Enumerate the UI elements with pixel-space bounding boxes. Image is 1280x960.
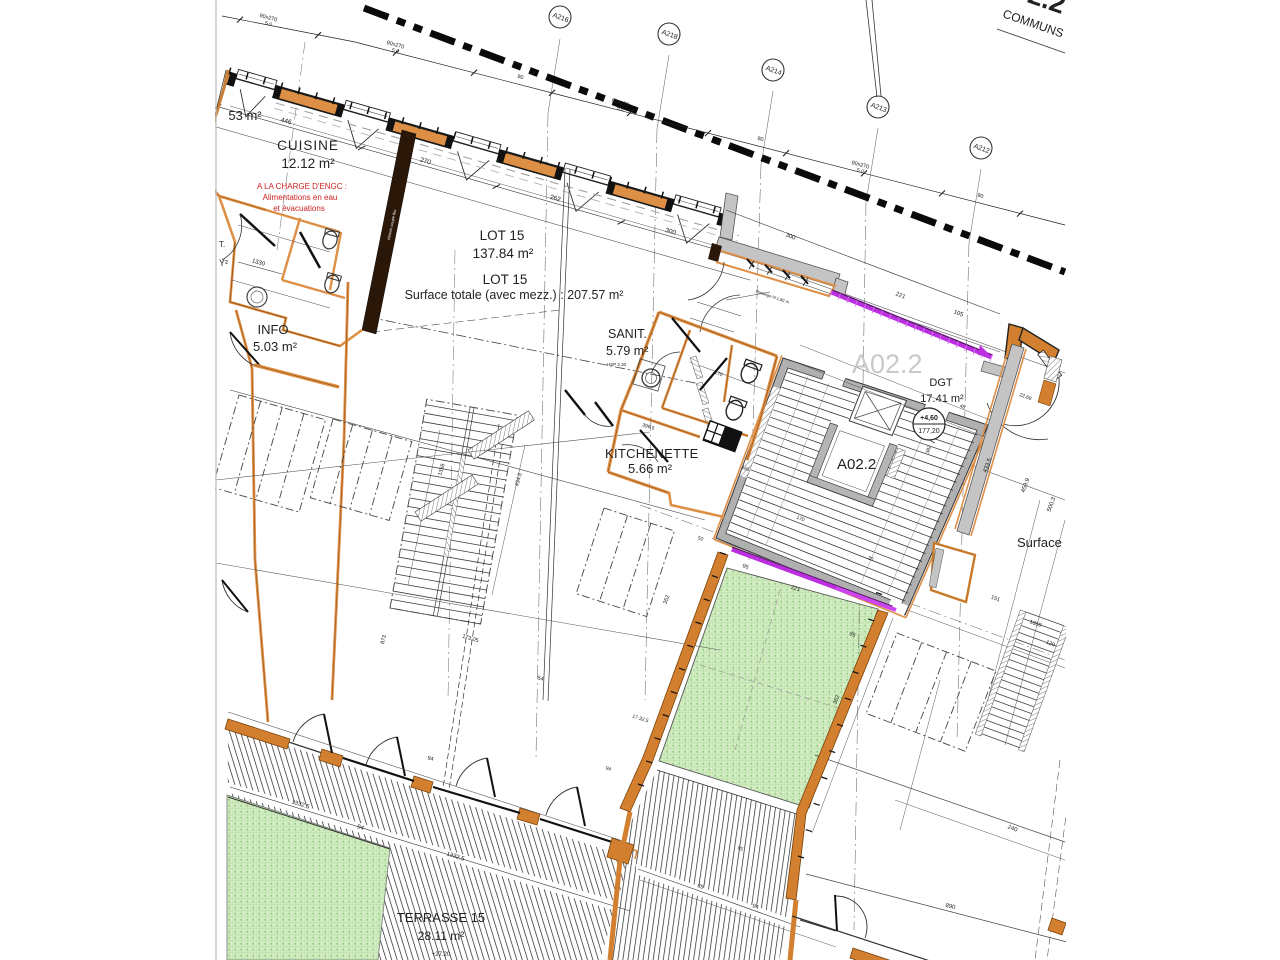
- svg-text:KITCHENETTE: KITCHENETTE: [605, 446, 699, 461]
- svg-text:12.12 m²: 12.12 m²: [281, 156, 335, 171]
- svg-text:LOT 15: LOT 15: [483, 272, 528, 287]
- svg-text:DGT: DGT: [929, 377, 953, 389]
- svg-text:28.11 m²: 28.11 m²: [418, 929, 464, 943]
- svg-text:A LA CHARGE D'ENGC :: A LA CHARGE D'ENGC :: [257, 182, 347, 191]
- svg-text:5.03 m²: 5.03 m²: [253, 339, 298, 354]
- svg-text:A02.2: A02.2: [837, 456, 876, 473]
- svg-text:5.66 m²: 5.66 m²: [628, 461, 673, 476]
- svg-text:CUISINE: CUISINE: [277, 138, 339, 153]
- svg-text:Surface: Surface: [1017, 535, 1062, 550]
- svg-text:Alimentations en eau: Alimentations en eau: [263, 193, 338, 202]
- svg-text:53 m²: 53 m²: [228, 108, 262, 123]
- svg-text:T.: T.: [219, 240, 225, 249]
- svg-text:Surface totale (avec mezz.) :: Surface totale (avec mezz.) : 207.57 m²: [405, 288, 624, 302]
- svg-text:A02.2: A02.2: [852, 349, 923, 379]
- svg-text:137.84 m²: 137.84 m²: [473, 246, 534, 261]
- svg-text:LOT 15: LOT 15: [480, 228, 525, 243]
- svg-text:Y²: Y²: [219, 258, 228, 268]
- svg-text:HSP 2.30: HSP 2.30: [607, 362, 627, 367]
- svg-text:17.41 m²: 17.41 m²: [920, 393, 964, 405]
- svg-text:177,20: 177,20: [918, 428, 940, 435]
- svg-text:SANIT.: SANIT.: [608, 327, 647, 341]
- svg-text:+4,60: +4,60: [920, 415, 938, 422]
- svg-text:INFO: INFO: [257, 322, 288, 337]
- svg-text:TERRASSE 15: TERRASSE 15: [397, 910, 485, 925]
- svg-text:5.79 m²: 5.79 m²: [606, 344, 648, 358]
- svg-text:et évacuations: et évacuations: [273, 204, 325, 213]
- svg-text:+27.20: +27.20: [432, 952, 451, 958]
